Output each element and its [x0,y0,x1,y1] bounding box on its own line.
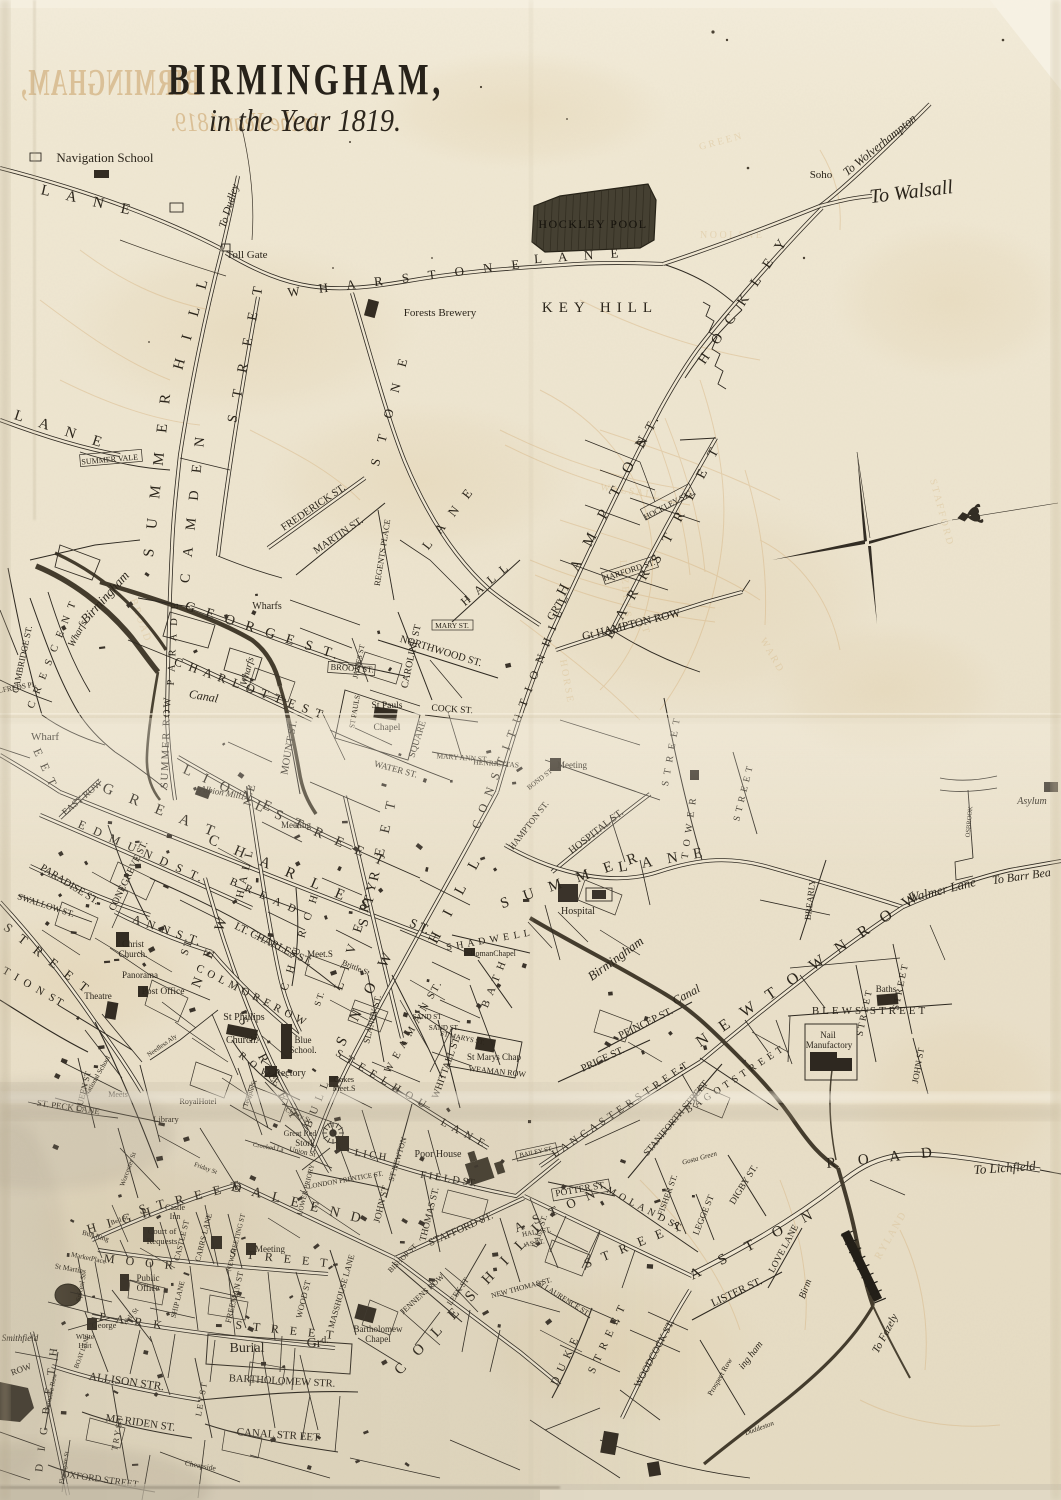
svg-text:SAND ST: SAND ST [413,1013,443,1021]
svg-text:Hospital: Hospital [561,906,595,917]
svg-text:Blue: Blue [295,1035,312,1045]
svg-text:HOCKLEY POOL: HOCKLEY POOL [538,217,647,231]
svg-text:Wharfs: Wharfs [252,601,282,612]
svg-text:BIRMINGHAM,: BIRMINGHAM, [168,55,444,104]
svg-text:St Pauls: St Pauls [372,701,403,711]
svg-text:Nail: Nail [820,1030,836,1040]
svg-text:Toll Gate: Toll Gate [226,249,267,261]
svg-text:Panorama: Panorama [122,970,158,980]
svg-text:Manufactory: Manufactory [806,1040,853,1050]
svg-text:KEY HILL: KEY HILL [542,300,658,316]
svg-text:Forests Brewery: Forests Brewery [404,307,477,319]
svg-text:Soho: Soho [810,169,833,181]
svg-text:Meet.S: Meet.S [307,949,333,959]
svg-text:MARY ST.: MARY ST. [435,621,469,630]
svg-text:Christ: Christ [122,939,145,949]
svg-text:Church.: Church. [119,949,148,959]
svg-text:Navigation School: Navigation School [56,150,154,165]
svg-text:School.: School. [289,1045,316,1055]
svg-text:Baths: Baths [876,984,897,994]
svg-text:St Marys Chap: St Marys Chap [467,1052,522,1062]
svg-text:in the Year 1819.: in the Year 1819. [209,102,401,138]
